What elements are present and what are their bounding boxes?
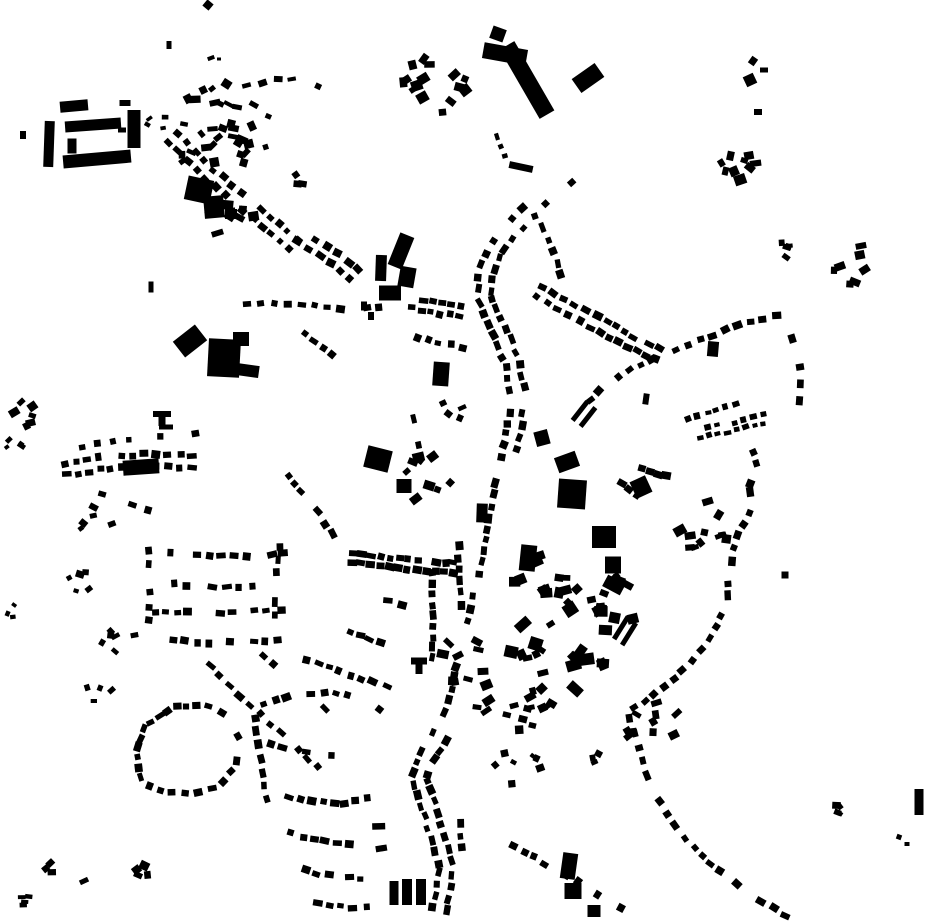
figure-ground-map <box>0 0 930 924</box>
building-footprint-canvas <box>0 0 930 924</box>
